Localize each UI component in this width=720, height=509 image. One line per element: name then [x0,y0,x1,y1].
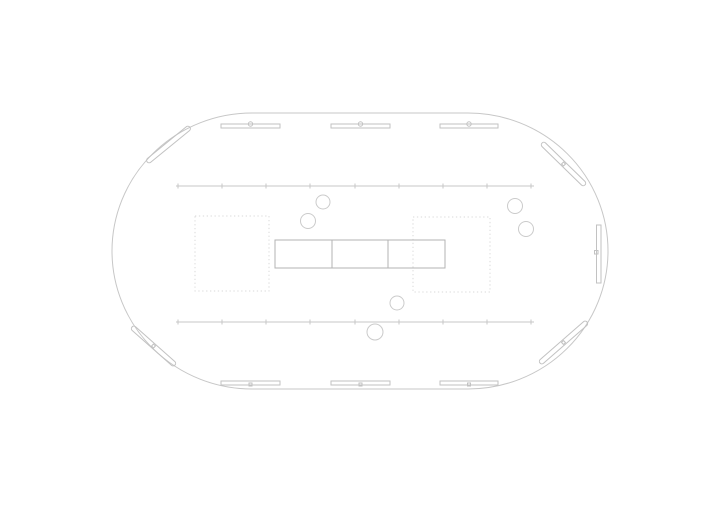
circle-seat-4 [519,222,534,237]
building-outline [112,113,608,389]
corner-panel-bottom-right [538,320,588,365]
circle-seat-1 [316,195,330,209]
corner-panel-top-right [540,141,586,186]
dashed-zone-right [413,217,490,292]
circle-seat-5 [390,296,404,310]
floor-plan-canvas [0,0,720,509]
circle-seat-3 [508,199,523,214]
upper-rail-line [176,184,534,189]
center-table [275,240,445,268]
floor-plan-drawing [0,0,720,509]
dashed-zone-left [195,216,269,291]
corner-panel-bottom-right-marker [562,341,566,345]
circle-seat-2 [301,214,316,229]
corner-panel-top-right-marker [562,162,566,166]
corner-panel-top-left [146,125,192,164]
circle-seat-6 [367,324,383,340]
corner-panel-bottom-left [130,325,176,367]
lower-rail-line [176,320,534,325]
